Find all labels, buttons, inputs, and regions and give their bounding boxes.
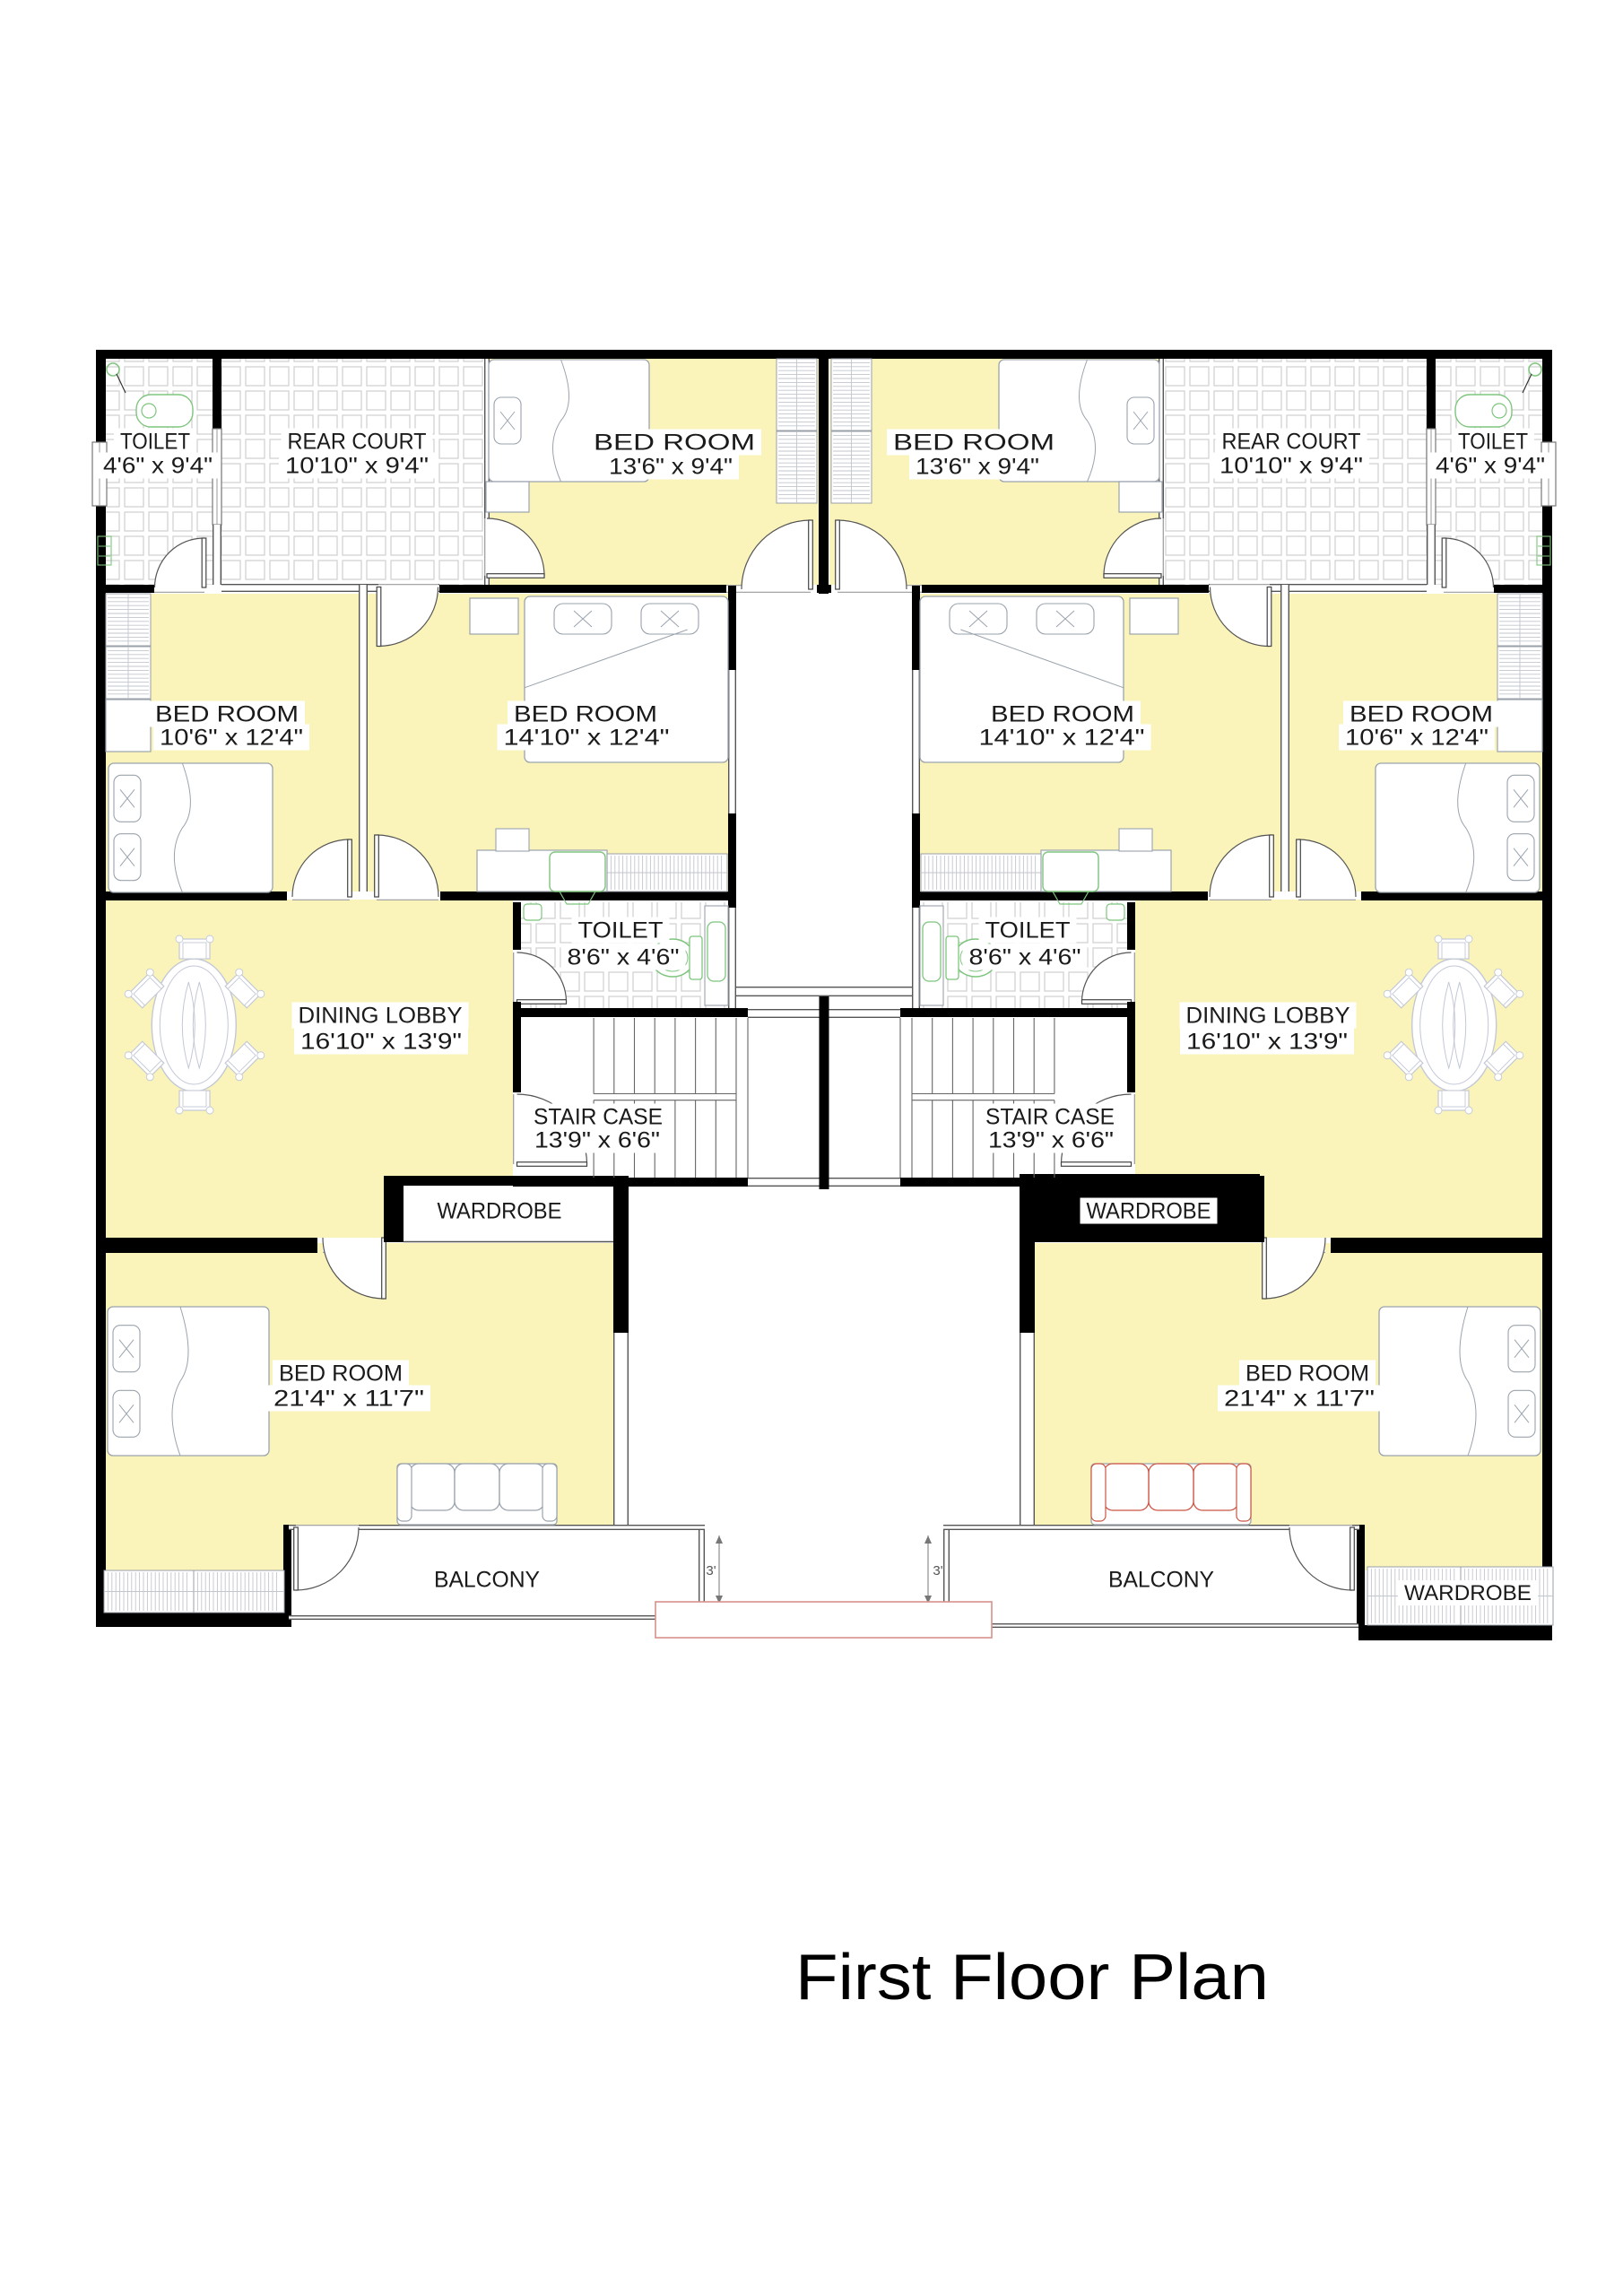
svg-text:BED ROOM: BED ROOM — [893, 430, 1055, 456]
svg-text:STAIR CASE: STAIR CASE — [985, 1105, 1115, 1130]
svg-text:STAIR CASE: STAIR CASE — [534, 1105, 663, 1130]
svg-text:TOILET: TOILET — [985, 918, 1071, 944]
svg-text:BED ROOM: BED ROOM — [514, 702, 657, 727]
svg-text:WARDROBE: WARDROBE — [1404, 1581, 1532, 1605]
svg-text:BED ROOM: BED ROOM — [991, 702, 1134, 727]
svg-text:13'9" x 6'6": 13'9" x 6'6" — [534, 1128, 660, 1153]
svg-text:14'10" x 12'4": 14'10" x 12'4" — [504, 726, 670, 751]
svg-text:4'6" x 9'4": 4'6" x 9'4" — [103, 454, 213, 479]
svg-text:TOILET: TOILET — [578, 918, 664, 944]
svg-text:8'6" x 4'6": 8'6" x 4'6" — [568, 945, 680, 970]
svg-text:16'10" x 13'9": 16'10" x 13'9" — [1186, 1030, 1348, 1055]
svg-text:REAR COURT: REAR COURT — [288, 430, 427, 455]
svg-text:BED ROOM: BED ROOM — [279, 1361, 403, 1387]
svg-text:10'10" x 9'4": 10'10" x 9'4" — [285, 454, 429, 479]
svg-text:10'6" x 12'4": 10'6" x 12'4" — [1345, 726, 1488, 751]
svg-text:16'10" x 13'9": 16'10" x 13'9" — [300, 1030, 462, 1055]
svg-text:First Floor Plan: First Floor Plan — [795, 1942, 1269, 2013]
svg-text:WARDROBE: WARDROBE — [438, 1199, 562, 1224]
svg-text:TOILET: TOILET — [120, 430, 190, 455]
svg-text:BED ROOM: BED ROOM — [1350, 702, 1493, 727]
svg-text:WARDROBE: WARDROBE — [1087, 1199, 1211, 1224]
svg-text:BALCONY: BALCONY — [434, 1568, 540, 1593]
svg-text:8'6" x 4'6": 8'6" x 4'6" — [969, 945, 1081, 970]
svg-text:DINING LOBBY: DINING LOBBY — [1186, 1004, 1350, 1029]
svg-text:10'10" x 9'4": 10'10" x 9'4" — [1219, 454, 1363, 479]
svg-text:TOILET: TOILET — [1458, 430, 1528, 455]
svg-text:10'6" x 12'4": 10'6" x 12'4" — [160, 726, 303, 751]
svg-text:3': 3' — [933, 1563, 942, 1578]
svg-text:BALCONY: BALCONY — [1108, 1568, 1214, 1593]
svg-text:21'4" x 11'7": 21'4" x 11'7" — [273, 1387, 424, 1412]
svg-text:BED ROOM: BED ROOM — [594, 430, 755, 456]
svg-text:BED ROOM: BED ROOM — [155, 702, 299, 727]
svg-text:13'9" x 6'6": 13'9" x 6'6" — [988, 1128, 1114, 1153]
svg-text:14'10" x 12'4": 14'10" x 12'4" — [979, 726, 1145, 751]
svg-text:DINING LOBBY: DINING LOBBY — [299, 1004, 463, 1029]
svg-text:REAR COURT: REAR COURT — [1222, 430, 1361, 455]
svg-text:13'6" x 9'4": 13'6" x 9'4" — [609, 455, 733, 480]
svg-text:3': 3' — [706, 1563, 716, 1578]
svg-text:BED ROOM: BED ROOM — [1245, 1361, 1369, 1387]
svg-text:21'4" x 11'7": 21'4" x 11'7" — [1224, 1387, 1375, 1412]
svg-text:13'6" x 9'4": 13'6" x 9'4" — [916, 455, 1039, 480]
svg-text:4'6" x 9'4": 4'6" x 9'4" — [1436, 454, 1545, 479]
